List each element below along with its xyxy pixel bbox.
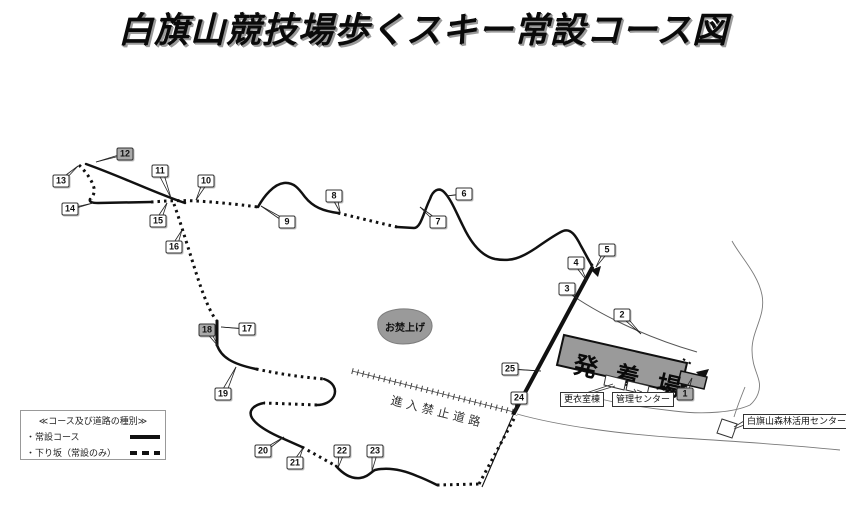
course-map-page: 白旗山競技場歩くスキー常設コース図 進入禁止道路 お焚上げ <box>0 0 846 507</box>
course-marker-17: 17 <box>239 323 256 336</box>
course-marker-23: 23 <box>367 445 384 458</box>
admin-center-label: 管理センター <box>612 392 674 407</box>
road <box>734 387 745 417</box>
course-downhill-segment <box>437 484 479 485</box>
course-service-line <box>482 413 514 487</box>
course-marker-1: 1 <box>677 388 694 401</box>
solid-line-sample <box>130 435 160 439</box>
course-marker-11: 11 <box>152 165 169 178</box>
course-marker-4: 4 <box>568 257 585 270</box>
course-marker-13: 13 <box>53 175 70 188</box>
changing-room-label: 更衣室棟 <box>560 392 604 407</box>
course-marker-7: 7 <box>430 216 447 229</box>
legend-header: ≪コース及び道路の種別≫ <box>26 414 160 427</box>
legend-item-label: ・常設コース <box>26 430 80 443</box>
course-marker-8: 8 <box>326 190 343 203</box>
course-marker-9: 9 <box>279 216 296 229</box>
course-solid-segment <box>336 466 437 485</box>
bonfire-label: お焚上げ <box>385 321 426 334</box>
course-marker-14: 14 <box>62 203 79 216</box>
course-marker-25: 25 <box>502 363 519 376</box>
course-marker-3: 3 <box>559 283 576 296</box>
course-marker-5: 5 <box>599 244 616 257</box>
forest-center-building <box>717 419 737 438</box>
course-solid-segment <box>397 190 591 264</box>
course-marker-19: 19 <box>215 388 232 401</box>
course-downhill-segment <box>302 447 336 466</box>
course-marker-12: 12 <box>117 148 134 161</box>
course-marker-18: 18 <box>199 324 216 337</box>
course-marker-21: 21 <box>287 457 304 470</box>
course-marker-16: 16 <box>166 241 183 254</box>
legend-item-label: ・下り坂（常設のみ） <box>26 446 116 459</box>
course-downhill-segment <box>256 369 324 379</box>
course-marker-2: 2 <box>614 309 631 322</box>
course-downhill-segment <box>338 213 397 227</box>
road <box>732 241 763 405</box>
course-downhill-segment <box>264 403 317 405</box>
course-marker-10: 10 <box>198 175 215 188</box>
course-marker-15: 15 <box>150 215 167 228</box>
course-marker-20: 20 <box>255 445 272 458</box>
course-solid-segment <box>90 199 151 203</box>
course-downhill-segment <box>174 204 216 320</box>
course-downhill-segment <box>479 415 516 484</box>
legend: ≪コース及び道路の種別≫ ・常設コース ・下り坂（常設のみ） <box>20 410 166 460</box>
course-marker-6: 6 <box>456 188 473 201</box>
dashed-line-sample <box>130 451 160 455</box>
no-entry-road: 進入禁止道路 <box>352 371 514 430</box>
road <box>674 405 750 413</box>
course-solid-segment <box>317 379 335 405</box>
forest-center-label: 白旗山森林活用センター <box>743 414 846 429</box>
course-marker-24: 24 <box>511 392 528 405</box>
course-downhill-segment <box>79 165 94 199</box>
course-solid-segment <box>251 403 302 447</box>
bonfire-area: お焚上げ <box>378 309 432 344</box>
no-entry-road-label: 進入禁止道路 <box>389 392 486 430</box>
course-marker-22: 22 <box>334 445 351 458</box>
course-solid-segment <box>217 345 256 369</box>
legend-item-permanent-course: ・常設コース <box>26 430 160 443</box>
legend-item-downhill: ・下り坂（常設のみ） <box>26 446 160 459</box>
